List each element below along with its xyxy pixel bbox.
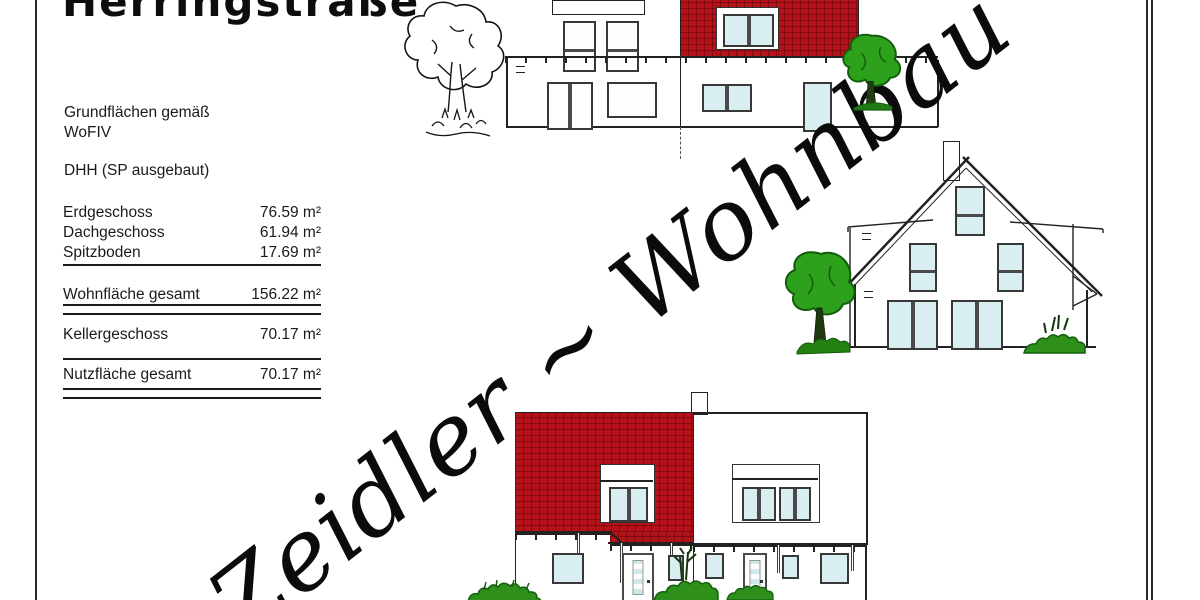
downpipe: [851, 545, 854, 571]
tree-green: [781, 248, 861, 354]
party-wall-dashed: [680, 127, 681, 159]
wall-edge: [506, 58, 508, 128]
table-row: Spitzboden17.69 m²: [63, 244, 321, 262]
page-frame-left: [35, 0, 37, 600]
door: [622, 553, 654, 600]
drawing-sheet: Herringstraße Grundflächen gemäß WoFIV D…: [0, 0, 1200, 600]
tree-green: [836, 32, 908, 112]
window: [887, 300, 938, 350]
window: [779, 487, 811, 521]
area-value: 156.22 m²: [251, 286, 321, 304]
page-frame-right-outer: [1151, 0, 1153, 600]
page-frame-right-inner: [1146, 0, 1148, 600]
downpipe: [777, 545, 780, 573]
area-label: Kellergeschoss: [63, 326, 168, 344]
area-label: Dachgeschoss: [63, 224, 165, 242]
window: [723, 14, 774, 47]
table-row: Dachgeschoss61.94 m²: [63, 224, 321, 242]
window: [955, 186, 985, 236]
window: [547, 82, 593, 130]
window: [997, 243, 1024, 292]
table-rule-double: [63, 388, 321, 399]
tree-sketch: [402, 0, 510, 140]
bush: [1022, 313, 1102, 353]
bush: [466, 580, 546, 600]
page-title: Herringstraße: [62, 0, 420, 23]
spec-note-line2: WoFIV: [64, 123, 210, 143]
table-rule-double: [63, 304, 321, 315]
area-value: 17.69 m²: [260, 244, 321, 262]
window: [782, 555, 799, 579]
window: [702, 84, 752, 112]
area-label: Wohnfläche gesamt: [63, 286, 200, 304]
bush: [652, 546, 718, 600]
dormer-fascia: [600, 464, 653, 482]
area-value: 70.17 m²: [260, 366, 321, 384]
window: [951, 300, 1003, 350]
spec-note-line1: Grundflächen gemäß: [64, 103, 210, 123]
dormer-fascia: [732, 464, 818, 480]
table-row: Erdgeschoss76.59 m²: [63, 204, 321, 222]
area-value: 61.94 m²: [260, 224, 321, 242]
window: [607, 82, 657, 118]
eaves: [515, 533, 610, 542]
area-label: Nutzfläche gesamt: [63, 366, 191, 384]
level-mark: [864, 291, 873, 298]
spec-subtitle: DHH (SP ausgebaut): [64, 162, 209, 180]
window: [742, 487, 776, 521]
window: [609, 487, 648, 522]
window: [552, 553, 584, 584]
area-value: 76.59 m²: [260, 204, 321, 222]
area-label: Spitzboden: [63, 244, 141, 262]
dormer: [552, 0, 645, 15]
table-rule: [63, 264, 321, 266]
party-wall-line: [680, 0, 682, 127]
table-row: Wohnfläche gesamt156.22 m²: [63, 286, 321, 304]
table-row: Kellergeschoss70.17 m²: [63, 326, 321, 344]
wall-edge: [865, 545, 867, 600]
level-mark: [862, 233, 871, 240]
window: [909, 243, 937, 292]
area-table: Erdgeschoss76.59 m² Dachgeschoss61.94 m²…: [63, 198, 321, 403]
table-rule: [63, 358, 321, 360]
table-row: Nutzfläche gesamt70.17 m²: [63, 366, 321, 384]
spec-note: Grundflächen gemäß WoFIV: [64, 103, 210, 143]
level-mark: [516, 66, 525, 73]
window: [820, 553, 849, 584]
area-value: 70.17 m²: [260, 326, 321, 344]
bush: [726, 583, 774, 600]
area-label: Erdgeschoss: [63, 204, 153, 222]
